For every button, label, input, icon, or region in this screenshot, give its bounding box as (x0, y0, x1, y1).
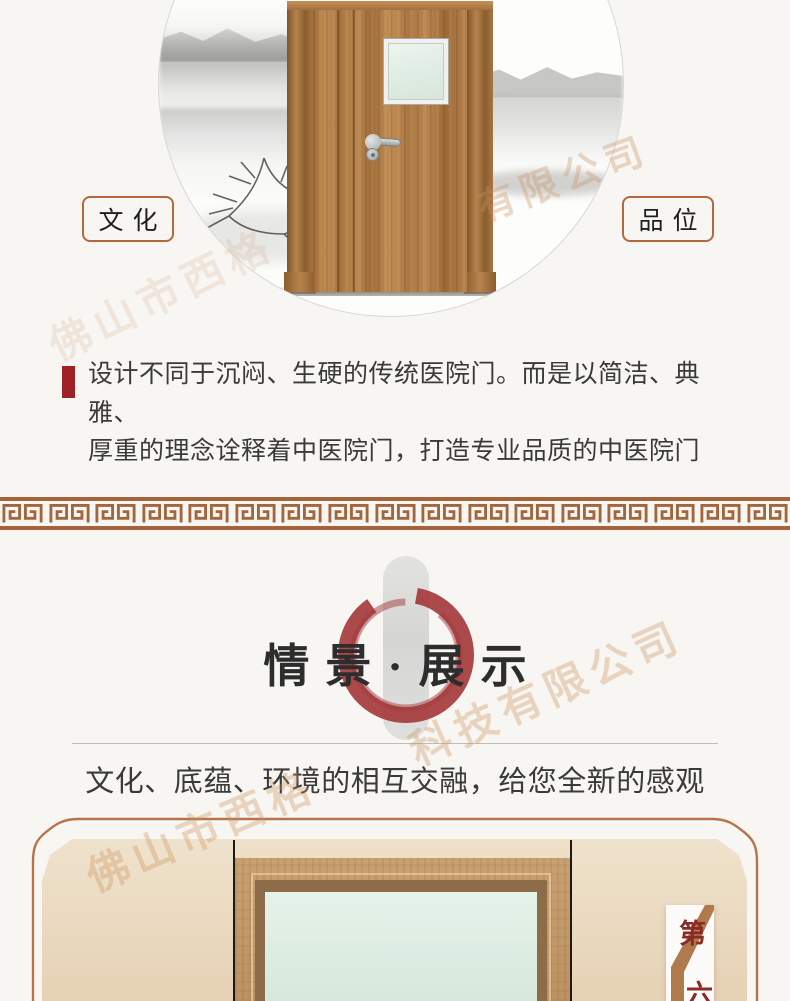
door-jamb-left (287, 10, 313, 292)
door-plinth-left (284, 272, 316, 294)
meander-motif-pair (188, 504, 229, 524)
product-detail-page: 文化 品位 设计不同于沉闷、生硬的传统医院门。而是以简洁、典雅、 厚重的理念诠释… (0, 0, 790, 1001)
taste-label: 品位 (629, 201, 706, 237)
meander-spiral-icon (257, 504, 276, 524)
meander-spiral-icon (210, 504, 229, 524)
meander-motif-pair (421, 504, 462, 524)
door-jamb-right (467, 10, 493, 292)
meander-spiral-icon (350, 504, 369, 524)
mist-band (473, 170, 623, 196)
meander-motif-pair (2, 504, 43, 524)
meander-spiral-icon (583, 504, 602, 524)
meander-spiral-icon (468, 504, 487, 524)
meander-spiral-icon (303, 504, 322, 524)
meander-spiral-icon (49, 504, 68, 524)
wooden-door-photo (287, 1, 493, 298)
meander-spiral-icon (536, 504, 555, 524)
chapter-badge: 第 六 (666, 905, 714, 1001)
meander-spiral-icon (328, 504, 347, 524)
meander-spiral-icon (24, 504, 43, 524)
meander-spiral-icon (490, 504, 509, 524)
meander-spiral-icon (700, 504, 719, 524)
section-subtitle: 文化、底蕴、环境的相互交融，给您全新的感观 (0, 758, 790, 800)
meander-spiral-icon (117, 504, 136, 524)
door-vision-window (384, 39, 448, 104)
meander-spiral-icon (443, 504, 462, 524)
door-seam (353, 10, 355, 292)
meander-bottom-rule (0, 526, 790, 530)
meander-motif-pair (142, 504, 183, 524)
culture-label-box: 文化 (82, 196, 174, 242)
culture-label: 文化 (89, 201, 166, 237)
meander-spiral-icon (375, 504, 394, 524)
accent-red-bar (62, 366, 75, 398)
scene-display-section: 第 六 (0, 810, 790, 1001)
description-paragraph: 设计不同于沉闷、生硬的传统医院门。而是以简洁、典雅、 厚重的理念诠释着中医院门，… (88, 356, 748, 472)
door-frame-header (287, 1, 493, 10)
meander-motif-pair (281, 504, 322, 524)
description-line-2: 厚重的理念诠释着中医院门，打造专业品质的中医院门 (88, 433, 748, 472)
meander-motif-pair (514, 504, 555, 524)
door-threshold-shadow (287, 292, 493, 296)
door-seam (337, 10, 339, 292)
meander-spiral-icon (654, 504, 673, 524)
meander-spiral-icon (164, 504, 183, 524)
description-line-1: 设计不同于沉闷、生硬的传统医院门。而是以简洁、典雅、 (88, 356, 748, 433)
meander-spiral-icon (722, 504, 741, 524)
meander-spiral-icon (142, 504, 161, 524)
badge-char-bottom: 六 (686, 973, 713, 1001)
meander-motif-pair (235, 504, 276, 524)
meander-motif-pair (328, 504, 369, 524)
meander-spiral-icon (188, 504, 207, 524)
door-plinth-right (464, 272, 496, 294)
meander-pattern-border (0, 497, 790, 530)
meander-spiral-icon (421, 504, 440, 524)
meander-motif-pair (700, 504, 741, 524)
meander-motif-pair (468, 504, 509, 524)
meander-motif-pair (607, 504, 648, 524)
door-lock-cylinder (366, 148, 379, 161)
meander-spiral-icon (2, 504, 21, 524)
meander-spiral-icon (71, 504, 90, 524)
meander-row (0, 501, 790, 526)
meander-motif-pair (95, 504, 136, 524)
meander-spiral-icon (95, 504, 114, 524)
meander-motif-pair (375, 504, 416, 524)
hills-silhouette (477, 52, 623, 98)
meander-motif-pair (654, 504, 695, 524)
meander-spiral-icon (561, 504, 580, 524)
meander-motif-pair (747, 504, 788, 524)
section-divider-line (72, 743, 718, 744)
meander-spiral-icon (629, 504, 648, 524)
meander-spiral-icon (747, 504, 766, 524)
meander-spiral-icon (397, 504, 416, 524)
section-title: 情景·展示 (0, 630, 790, 696)
meander-motif-pair (49, 504, 90, 524)
meander-spiral-icon (607, 504, 626, 524)
hero-circle-image (158, 0, 624, 317)
badge-char-top: 第 (679, 912, 706, 951)
meander-motif-pair (561, 504, 602, 524)
meander-spiral-icon (281, 504, 300, 524)
meander-spiral-icon (676, 504, 695, 524)
meander-spiral-icon (514, 504, 533, 524)
taste-label-box: 品位 (622, 196, 714, 242)
meander-spiral-icon (769, 504, 788, 524)
meander-spiral-icon (235, 504, 254, 524)
